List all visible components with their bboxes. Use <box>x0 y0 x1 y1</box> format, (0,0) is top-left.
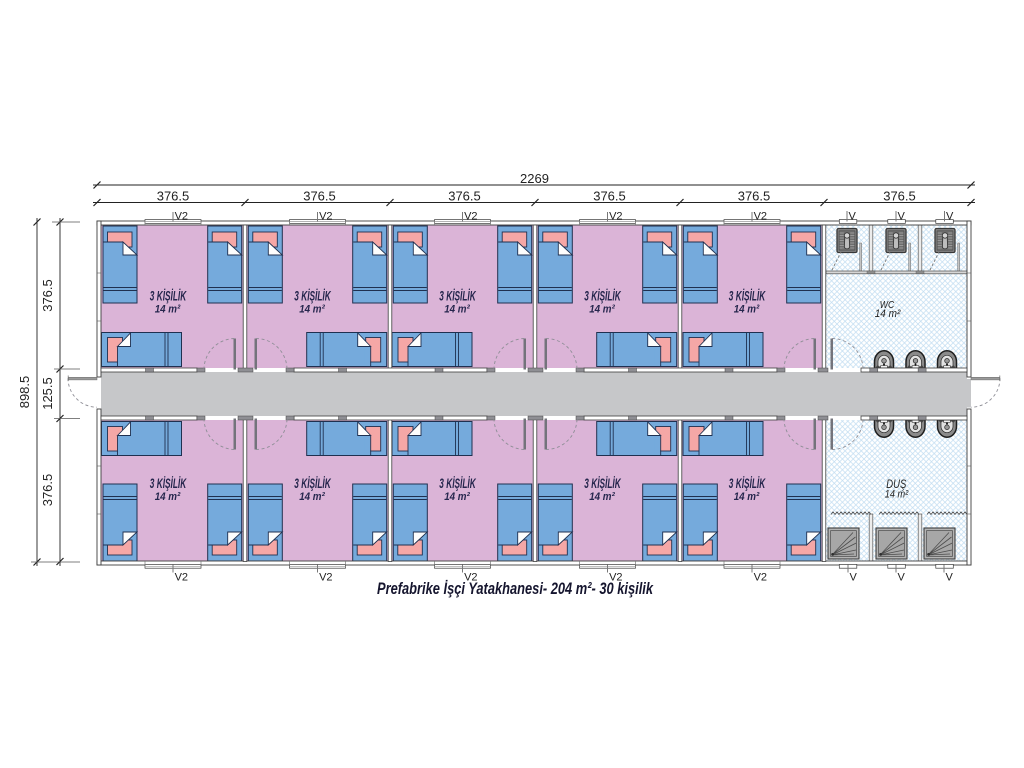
svg-text:14 m²: 14 m² <box>155 303 181 315</box>
svg-text:376.5: 376.5 <box>303 188 336 203</box>
svg-text:3 KİŞİLİK: 3 KİŞİLİK <box>294 475 331 491</box>
svg-text:14 m²: 14 m² <box>444 491 470 503</box>
svg-text:14 m²: 14 m² <box>589 303 615 315</box>
svg-text:376.5: 376.5 <box>40 279 55 312</box>
svg-text:14 m²: 14 m² <box>589 491 615 503</box>
svg-text:V2: V2 <box>175 572 188 584</box>
svg-text:V2: V2 <box>754 211 767 223</box>
svg-text:3 KİŞİLİK: 3 KİŞİLİK <box>294 287 331 303</box>
svg-text:V: V <box>898 210 906 222</box>
svg-text:376.5: 376.5 <box>157 188 190 203</box>
svg-text:V2: V2 <box>609 211 622 223</box>
svg-text:V: V <box>946 210 954 222</box>
svg-text:2269: 2269 <box>520 171 549 186</box>
svg-text:3 KİŞİLİK: 3 KİŞİLİK <box>150 475 187 491</box>
svg-text:Prefabrike İşçi Yatakhanesi- 2: Prefabrike İşçi Yatakhanesi- 204 m²- 30 … <box>377 579 654 598</box>
svg-text:3 KİŞİLİK: 3 KİŞİLİK <box>584 475 621 491</box>
svg-text:14 m²: 14 m² <box>299 491 325 503</box>
svg-text:3 KİŞİLİK: 3 KİŞİLİK <box>729 287 766 303</box>
svg-text:376.5: 376.5 <box>738 188 771 203</box>
svg-text:V: V <box>898 572 906 584</box>
svg-text:898.5: 898.5 <box>17 376 32 409</box>
svg-text:V2: V2 <box>319 572 332 584</box>
svg-text:V: V <box>849 210 857 222</box>
svg-text:14 m²: 14 m² <box>885 488 909 500</box>
svg-text:V2: V2 <box>754 572 767 584</box>
svg-text:14 m²: 14 m² <box>734 491 760 503</box>
svg-text:3 KİŞİLİK: 3 KİŞİLİK <box>729 475 766 491</box>
svg-text:376.5: 376.5 <box>448 188 481 203</box>
svg-text:14 m²: 14 m² <box>155 491 181 503</box>
svg-text:14 m²: 14 m² <box>444 303 470 315</box>
svg-text:376.5: 376.5 <box>883 188 916 203</box>
svg-text:376.5: 376.5 <box>593 188 626 203</box>
svg-text:14 m²: 14 m² <box>875 308 901 320</box>
svg-text:14 m²: 14 m² <box>734 303 760 315</box>
svg-text:125.5: 125.5 <box>40 377 55 410</box>
svg-text:V2: V2 <box>464 211 477 223</box>
svg-text:3 KİŞİLİK: 3 KİŞİLİK <box>584 287 621 303</box>
svg-text:376.5: 376.5 <box>40 474 55 507</box>
svg-text:14 m²: 14 m² <box>299 303 325 315</box>
svg-text:V: V <box>946 572 954 584</box>
svg-text:V2: V2 <box>175 211 188 223</box>
svg-text:3 KİŞİLİK: 3 KİŞİLİK <box>439 475 476 491</box>
svg-text:3 KİŞİLİK: 3 KİŞİLİK <box>150 287 187 303</box>
svg-text:V2: V2 <box>319 211 332 223</box>
svg-text:3 KİŞİLİK: 3 KİŞİLİK <box>439 287 476 303</box>
svg-text:V: V <box>850 572 858 584</box>
